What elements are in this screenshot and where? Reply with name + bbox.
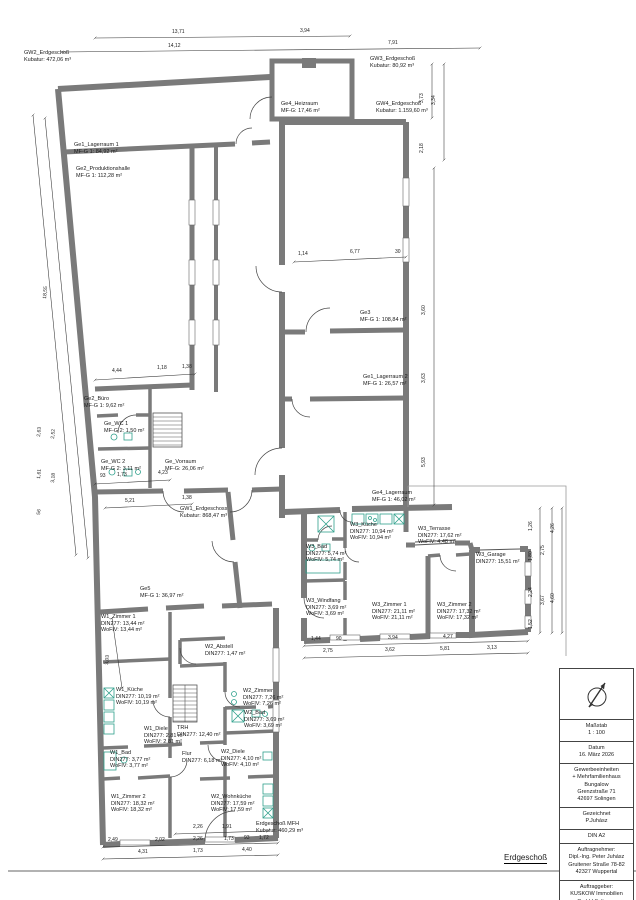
- dim-label: 3,94: [388, 636, 398, 641]
- room-label: Ge5MF-G 1: 36,97 m²: [140, 586, 183, 599]
- dim-label: 3,94: [300, 29, 310, 34]
- terrace-outline: [408, 486, 566, 656]
- room-label: FlurDIN277: 6,18 m²: [182, 751, 222, 764]
- floor-title: Erdgeschoß: [504, 853, 547, 864]
- room-label: W1_Zimmer 1DIN277: 13,44 m²WoFlV: 13,44 …: [101, 614, 144, 634]
- room-label: W3_TerrasseDIN277: 17,62 m²WoFlV: 4,48 m…: [418, 526, 461, 546]
- room-label: W1_KücheDIN277: 10,19 m²WoFlV: 10,19 m²: [116, 687, 159, 707]
- dim-label: 7,91: [388, 41, 398, 46]
- room-label: W3_Zimmer 1DIN277: 21,11 m²WoFlV: 21,11 …: [372, 602, 415, 622]
- title-block-scale: Maßstab1 : 100: [560, 719, 633, 741]
- dim-label: 1,72: [259, 836, 269, 841]
- dim-label: 3,60: [422, 305, 427, 315]
- dim-label: 1,73: [224, 837, 234, 842]
- room-label: Ge4_LagerraumMF-G 1: 46,02 m²: [372, 490, 415, 503]
- dim-label: 1,73: [117, 473, 127, 478]
- room-label: W2_WohnkücheDIN277: 17,59 m²WoFlV: 17,59…: [211, 794, 254, 814]
- dim-label: 1,61: [37, 469, 43, 479]
- north-arrow-cell: [560, 669, 633, 719]
- room-label: Ge1_Lagerraum 2MF-G 1: 26,57 m²: [363, 374, 408, 387]
- dim-label: 4,23: [158, 471, 168, 476]
- floorplan-drawing: [0, 0, 636, 900]
- title-block-drawn: GezeichnetP.Juhász: [560, 807, 633, 829]
- room-label: Ge1_Lagerraum 1MF-G 1: 84,92 m²: [74, 142, 119, 155]
- room-label: W1_Zimmer 2DIN277: 18,32 m²WoFlV: 18,32 …: [111, 794, 154, 814]
- room-label: Ge3MF-G 1: 108,84 m²: [360, 310, 406, 323]
- dim-label: 4,31: [138, 850, 148, 855]
- dim-label: 5,81: [440, 647, 450, 652]
- dim-label: 1,52: [529, 619, 534, 629]
- dim-label: 3,18: [51, 473, 57, 483]
- dim-label: 90: [336, 637, 342, 642]
- dim-label: 3,63: [422, 373, 427, 383]
- volume-label: GW4_ErdgeschoßKubatur: 1.159,60 m³: [376, 101, 428, 114]
- volume-label: GW1_ErdgeschossKubatur: 868,47 m³: [180, 506, 227, 519]
- dim-label: 3,03: [105, 655, 111, 665]
- room-label: W3_KücheDIN277: 10,94 m²WoFlV: 10,94 m²: [350, 522, 393, 542]
- room-label: W1_BadDIN277: 3,77 m²WoFlV: 3,77 m²: [110, 750, 150, 770]
- dim-label: 1,44: [311, 637, 321, 642]
- dim-label: 13,71: [172, 30, 185, 35]
- room-label: Ge_WC 2MF-G 2: 3,11 m²: [101, 459, 141, 472]
- dim-label: 93: [100, 474, 106, 479]
- dim-label: 2,63: [37, 427, 43, 437]
- dim-label: 2,75: [323, 649, 333, 654]
- title-block-project: Gewerbeeinheiten+ Mehrfamilienhaus Bunga…: [560, 763, 633, 807]
- dim-label: 4,26: [551, 523, 556, 533]
- dim-label: 1,14: [298, 252, 308, 257]
- dim-label: 2,18: [420, 143, 425, 153]
- dim-label: 2,26: [193, 837, 203, 842]
- dim-label: 6,77: [350, 250, 360, 255]
- room-label: TRHDIN277: 12,40 m²: [177, 725, 220, 738]
- room-label: W3_Zimmer 2DIN277: 17,32 m²WoFlV: 17,32 …: [437, 602, 480, 622]
- volume-label: GW3_ErdgeschoßKubatur: 80,92 m³: [370, 56, 415, 69]
- title-block: Maßstab1 : 100 Datum16. März 2026 Gewerb…: [559, 668, 634, 900]
- dim-label: 1,38: [182, 496, 192, 501]
- title-block-client: Auftraggeber:KUSKOW Immobilien GmbH Soli…: [560, 880, 633, 900]
- title-block-contractor: Auftragnehmer:Dipl.-Ing. Peter Juhász Gr…: [560, 843, 633, 880]
- dim-label: 2,02: [155, 838, 165, 843]
- dim-label: 3,73: [420, 93, 425, 103]
- dim-label: 3,13: [487, 646, 497, 651]
- dim-label: 93: [244, 836, 250, 841]
- floorplan-sheet: GW2_ErdgeschoßKubatur: 472,06 m³ GW3_Erd…: [0, 0, 636, 900]
- dim-label: 14,12: [168, 44, 181, 49]
- room-label: W2_AbstellDIN277: 1,47 m²: [205, 644, 245, 657]
- dim-label: 3,67: [541, 595, 546, 605]
- room-label: W3_WindfangDIN277: 3,69 m²WoFlV: 3,69 m²: [306, 598, 346, 618]
- room-label: W2_BadDIN277: 3,69 m²WoFlV: 3,69 m²: [244, 710, 284, 730]
- dim-label: 1,80: [529, 551, 534, 561]
- dim-label: 2,52: [51, 429, 57, 439]
- volume-label: GW2_ErdgeschoßKubatur: 472,06 m³: [24, 50, 71, 63]
- title-block-format: DIN A2: [560, 829, 633, 843]
- dim-label: 2,49: [108, 838, 118, 843]
- dim-label: 3,34: [432, 95, 437, 105]
- dim-label: 1,73: [193, 849, 203, 854]
- dim-label: 30: [395, 250, 401, 255]
- room-label: W2_DieleDIN277: 4,10 m²WoFlV: 4,10 m²: [221, 749, 261, 769]
- dim-label: 1,91: [222, 825, 232, 830]
- north-arrow-icon: [575, 673, 619, 717]
- room-label: Ge_VorraumMF-G: 26,06 m²: [165, 459, 204, 472]
- dim-label: 2,75: [541, 545, 546, 555]
- dim-label: 4,44: [112, 369, 122, 374]
- dim-label: 2,26: [193, 825, 203, 830]
- dim-label: 2,24: [529, 587, 534, 597]
- room-label: Ge4_HeizraumMF-G: 17,46 m²: [281, 101, 320, 114]
- room-label: W3_BadDIN277: 5,74 m²WoFlV: 5,74 m²: [306, 544, 346, 564]
- dim-label: 3,62: [385, 648, 395, 653]
- room-label: Ge2_BüroMF-G 1: 9,62 m²: [84, 396, 124, 409]
- room-label: Ge2_ProduktionshalleMF-G 1: 112,28 m²: [76, 166, 130, 179]
- dim-label: 4,60: [551, 593, 556, 603]
- dim-label: 4,40: [242, 848, 252, 853]
- room-label: W2_ZimmerDIN277: 7,26 m²WoFlV: 7,26 m²: [243, 688, 283, 708]
- dim-label: 4,27: [443, 635, 453, 640]
- volume-label: Erdgeschoß MFHKubatur: 460,29 m³: [256, 821, 303, 834]
- room-label: W3_GarageDIN277: 15,51 m²: [476, 552, 519, 565]
- dim-label: 1,38: [182, 365, 192, 370]
- title-block-date: Datum16. März 2026: [560, 741, 633, 763]
- inner-walls: [64, 142, 472, 635]
- dim-label: 5,93: [422, 457, 427, 467]
- dim-label: 56: [37, 509, 42, 515]
- dim-label: 1,26: [529, 521, 534, 531]
- dim-label: 5,21: [125, 499, 135, 504]
- room-label: Ge_WC 1MF-G 2: 1,50 m²: [104, 421, 144, 434]
- dim-label: 1,18: [157, 366, 167, 371]
